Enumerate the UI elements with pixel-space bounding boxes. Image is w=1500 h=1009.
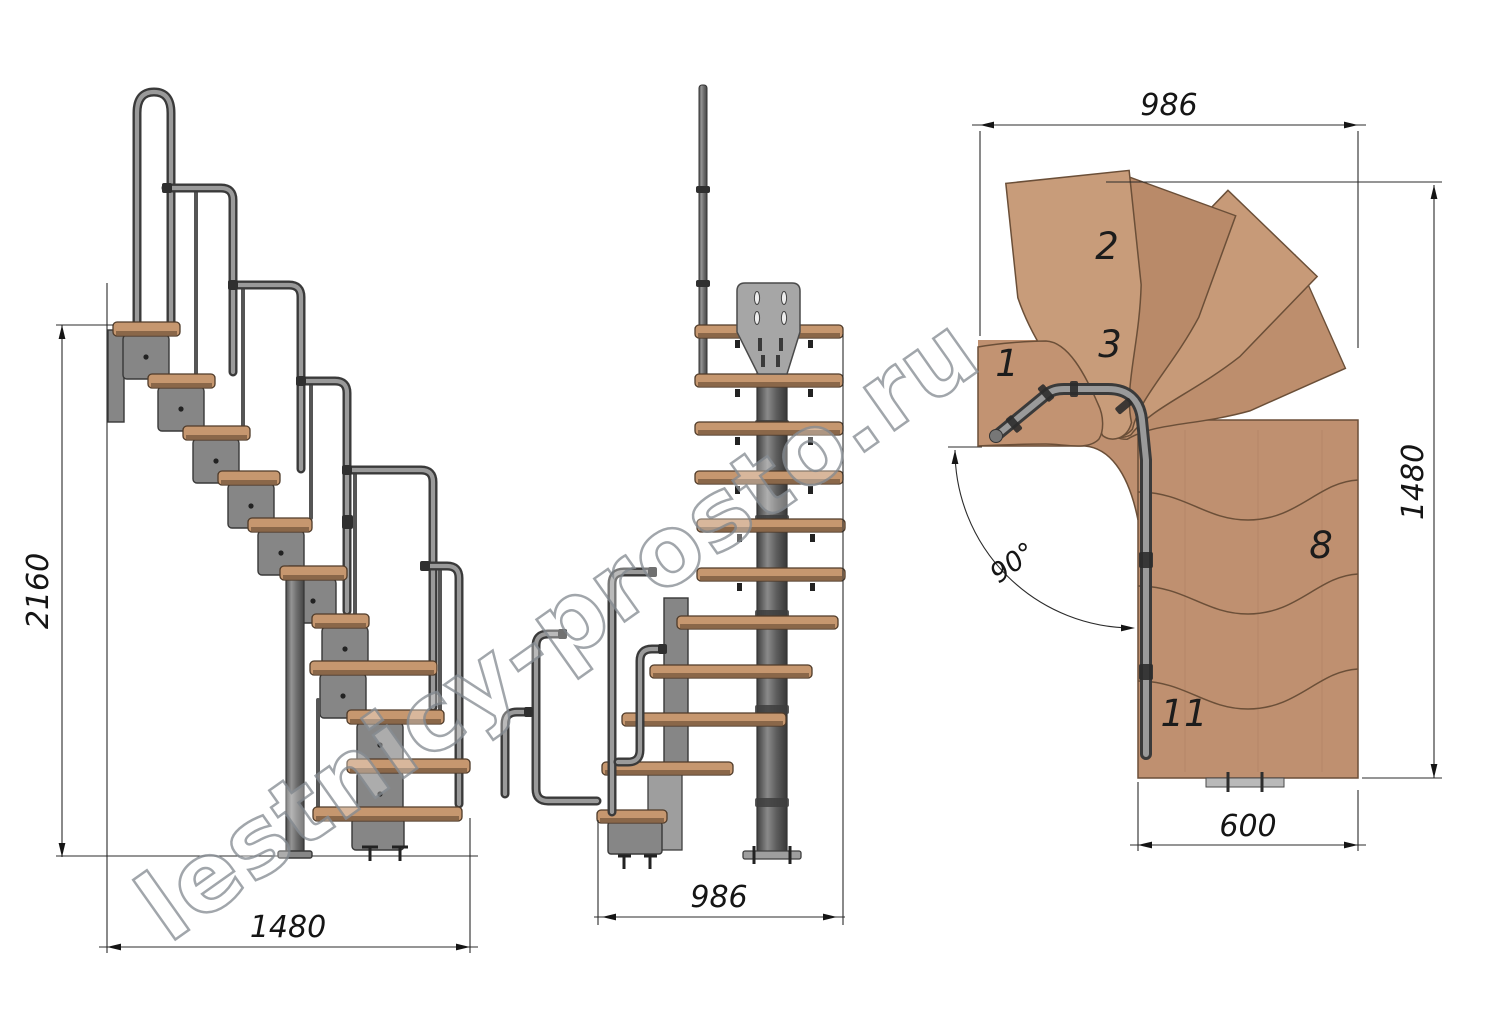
staircase-drawing: 2160 1480 [0,0,1500,1009]
wall-bracket [108,330,124,422]
front-bottom-module [608,822,662,854]
plan-base-plate [1206,778,1284,787]
turn-angle-annotation: 90° [952,450,1135,631]
plan-width-top-label: 986 [1140,88,1197,123]
support-column-side [286,566,304,854]
plan-view: 1 2 3 8 11 986 1480 [948,88,1442,851]
front-width-label: 986 [690,880,747,915]
mounting-plate [737,283,800,374]
column-base-side [278,851,312,858]
plan-flight-width-label: 600 [1219,809,1276,844]
dimension-side-height: 2160 [21,325,113,857]
anchor-feet-front [618,856,657,869]
step-number-11: 11 [1160,692,1207,735]
side-height-label: 2160 [21,553,56,629]
step-number-2: 2 [1095,225,1119,268]
column-base-front [743,851,801,859]
step-number-3: 3 [1098,323,1122,366]
turn-angle-label: 90° [985,537,1042,590]
step-number-8: 8 [1309,524,1333,567]
technical-drawing-page: 2160 1480 [0,0,1500,1009]
dimension-plan-flight-width: 600 [1130,782,1366,851]
side-length-label: 1480 [250,910,326,945]
side-elevation-view: 2160 1480 [21,92,478,953]
rail-end-cap [990,430,1003,443]
step-number-1: 1 [995,342,1019,385]
front-elevation-view: 986 [505,85,845,925]
plan-depth-label: 1480 [1396,444,1431,520]
